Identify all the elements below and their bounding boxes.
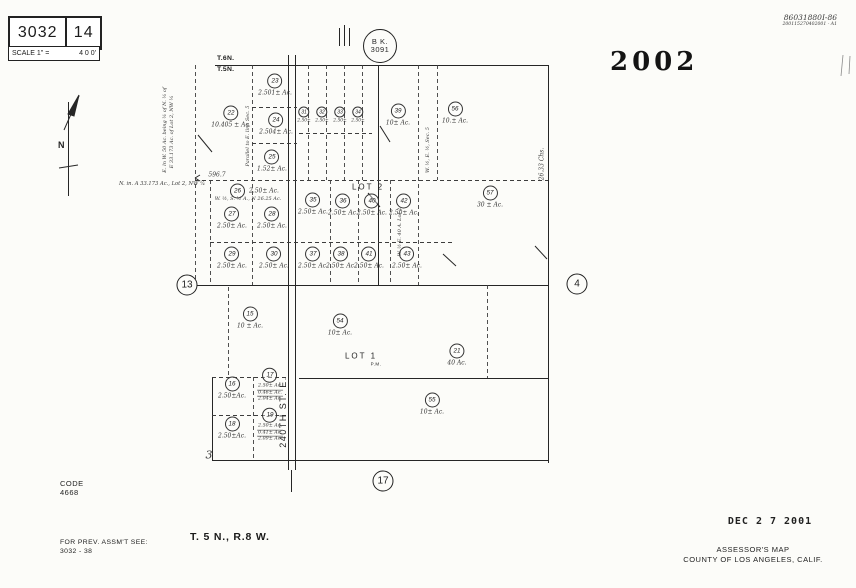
section-marker: 13 (177, 275, 198, 296)
parcel-acreage: 2.50± Ac. (217, 263, 247, 270)
map-annotation: W. ½, E. ½, Sec. 5 (425, 127, 431, 173)
parcel-acreage: 2.50± Ac. (354, 263, 384, 270)
parcel-circle: 24 (269, 113, 284, 128)
parcel-acreage: 2.50± (315, 119, 328, 124)
parcel-acreage: 30 ± Ac. (477, 202, 503, 209)
parcel-circle: 57 (482, 186, 497, 201)
parcel-circle: 23 (268, 74, 283, 89)
parcel-acreage: 2.50± Ac. (298, 263, 328, 270)
parcel-layer: 232.501± Ac.2210.405 ± Ac.242.504± Ac.25… (0, 0, 856, 588)
parcel-circle: 30 (267, 247, 282, 262)
parcel-acreage: 2.501± Ac. (258, 90, 292, 97)
parcel-acreage: 2.50± Ac. (298, 209, 328, 216)
parcel-circle: 31 (299, 107, 310, 118)
parcel-acreage: 2.50± Ac. (257, 223, 287, 230)
parcel-circle: 40 (365, 194, 380, 209)
parcel: 372.50± Ac. (298, 247, 328, 270)
parcel-circle: 28 (265, 207, 280, 222)
parcel: 312.50± (297, 107, 310, 124)
parcel-circle: 22 (224, 106, 239, 121)
parcel: 251.52± Ac. (257, 150, 287, 173)
parcel-acreage: 1.52± Ac. (257, 166, 287, 173)
parcel: 342.50± (351, 107, 364, 124)
lot-label: P.M. (371, 362, 382, 367)
parcel-circle: 35 (306, 193, 321, 208)
date-stamp: DEC 2 7 2001 (700, 516, 840, 527)
prev-assessment-value: 3032 - 38 (60, 548, 148, 557)
parcel: 5410± Ac. (328, 314, 352, 337)
section-marker: 4 (567, 274, 588, 295)
parcel: 2140 Ac. (447, 344, 466, 367)
parcel-acreage: 2.50± Ac. (357, 210, 387, 217)
lot-label: LOT 2 (352, 183, 384, 192)
parcel-circle: 42 (397, 194, 412, 209)
assessor-caption-line2: COUNTY OF LOS ANGELES, CALIF. (650, 555, 856, 565)
parcel: 1510 ± Ac. (237, 307, 263, 330)
parcel-acreage: 10.± Ac. (442, 118, 468, 125)
map-annotation: E 33.173 Ac. of Lot 2, NW ¼ (169, 96, 175, 169)
parcel: 242.504± Ac. (259, 113, 293, 136)
parcel-acreage: 2.50± (351, 119, 364, 124)
parcel-circle: 33 (335, 107, 346, 118)
parcel-acreage: 2.50± (297, 119, 310, 124)
parcel-acreage: 2.50± Ac. (328, 210, 358, 217)
parcel-circle: 55 (424, 393, 439, 408)
map-annotation: 3 (206, 449, 213, 462)
parcel: 172.50± Ac.0.46± Ac.2.04± Ac. (257, 368, 283, 403)
map-annotation: Parallel to E. line Sec. 5 (245, 106, 251, 167)
parcel-circle: 15 (242, 307, 257, 322)
parcel: 232.501± Ac. (258, 74, 292, 97)
parcel: 292.50± Ac. (217, 247, 247, 270)
parcel: 362.50± Ac. (328, 194, 358, 217)
parcel-acreage: 2.50± Ac.0.41± Ac.2.09± Ac. (257, 424, 283, 443)
parcel-acreage: 2.50± (333, 119, 346, 124)
parcel-acreage: 2.50± Ac.0.46± Ac.2.04± Ac. (257, 384, 283, 403)
code-value: 4668 (60, 488, 84, 497)
parcel-acreage: 10± Ac. (386, 120, 410, 127)
parcel-acreage: 40 Ac. (447, 360, 466, 367)
parcel: 402.50± Ac. (357, 194, 387, 217)
tax-code-block: CODE 4668 (60, 479, 84, 498)
parcel-acreage: 2.50±Ac. (218, 393, 246, 400)
parcel: 302.50± Ac. (259, 247, 289, 270)
map-annotation: 596.7 (208, 172, 225, 179)
map-annotation: E. ln W. 50 Ac. being ¼ of N. ¼ of (162, 87, 168, 172)
parcel-acreage: 2.50± Ac. (392, 263, 422, 270)
assessor-caption-line1: ASSESSOR'S MAP (650, 545, 856, 555)
prev-assessment-label: FOR PREV. ASSM'T SEE: (60, 539, 148, 548)
parcel-circle: 16 (225, 377, 240, 392)
parcel: 162.50±Ac. (218, 377, 246, 400)
parcel: 282.50± Ac. (257, 207, 287, 230)
parcel-acreage: 2.50± Ac. (389, 210, 419, 217)
parcel: 412.50± Ac. (354, 247, 384, 270)
parcel-circle: 41 (362, 247, 377, 262)
parcel-circle: 17 (263, 368, 278, 383)
parcel-acreage: 10± Ac. (420, 409, 444, 416)
parcel-circle: 54 (332, 314, 347, 329)
parcel-circle: 36 (336, 194, 351, 209)
parcel-circle: 32 (317, 107, 328, 118)
parcel: 182.50±Ac. (218, 417, 246, 440)
parcel-circle: 27 (225, 207, 240, 222)
map-annotation: W. ½, S. ½ A., N 26.25 Ac. (215, 196, 282, 202)
parcel: 3910± Ac. (386, 104, 410, 127)
map-annotation: 26.33 Chs. (539, 148, 546, 181)
map-annotation: W. ½ E. 40 A. Lot 2 (397, 208, 403, 257)
parcel-circle: 34 (353, 107, 364, 118)
parcel-acreage: 2.50± Ac. (249, 188, 279, 195)
parcel: 382.50± Ac. (326, 247, 356, 270)
section-marker: 17 (373, 471, 394, 492)
parcel-circle: 37 (306, 247, 321, 262)
lot-label: LOT 1 (345, 352, 377, 361)
code-label: CODE (60, 479, 84, 488)
parcel-acreage: 2.50± Ac. (259, 263, 289, 270)
parcel-acreage: 10± Ac. (328, 330, 352, 337)
parcel-acreage: 10 ± Ac. (237, 323, 263, 330)
parcel: 322.50± (315, 107, 328, 124)
parcel: 422.50± Ac. (389, 194, 419, 217)
parcel-acreage: 2.50±Ac. (218, 433, 246, 440)
parcel: 272.50± Ac. (217, 207, 247, 230)
parcel-acreage: 2.50± Ac. (326, 263, 356, 270)
prev-assessment-note: FOR PREV. ASSM'T SEE: 3032 - 38 (60, 539, 148, 557)
parcel: 5510± Ac. (420, 393, 444, 416)
parcel-circle: 18 (225, 417, 240, 432)
assessor-map-sheet: 3032 14 SCALE 1" = 4 0 0' B K. 3091 8603… (0, 0, 856, 588)
parcel-circle: 39 (390, 104, 405, 119)
parcel-acreage: 2.504± Ac. (259, 129, 293, 136)
parcel-circle: 29 (225, 247, 240, 262)
parcel-circle: 56 (447, 102, 462, 117)
parcel-acreage: 2.50± Ac. (217, 223, 247, 230)
parcel-circle: 19 (263, 408, 278, 423)
township-range-label: T. 5 N., R.8 W. (190, 531, 270, 543)
parcel: 352.50± Ac. (298, 193, 328, 216)
parcel-circle: 21 (450, 344, 465, 359)
assessor-map-caption: ASSESSOR'S MAP COUNTY OF LOS ANGELES, CA… (650, 545, 856, 565)
parcel-circle: 38 (334, 247, 349, 262)
parcel: 5730 ± Ac. (477, 186, 503, 209)
parcel: 5610.± Ac. (442, 102, 468, 125)
parcel-circle: 25 (265, 150, 280, 165)
parcel: 192.50± Ac.0.41± Ac.2.09± Ac. (257, 408, 283, 443)
map-annotation: N. in. A 33.173 Ac., Lot 2, NW ¼ (119, 181, 205, 187)
parcel: 332.50± (333, 107, 346, 124)
